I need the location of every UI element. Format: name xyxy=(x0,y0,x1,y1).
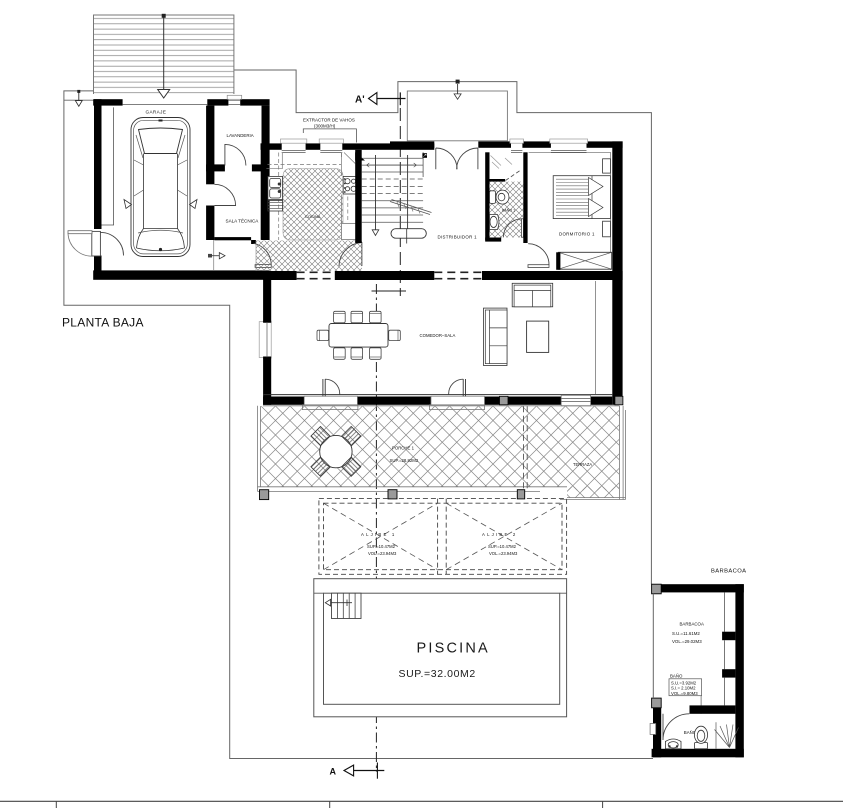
svg-text:DISTRIBUIDOR 1: DISTRIBUIDOR 1 xyxy=(438,234,478,239)
svg-text:BARBACOA: BARBACOA xyxy=(680,622,704,627)
svg-text:A: A xyxy=(330,767,337,777)
svg-text:SUP.=10.47M2: SUP.=10.47M2 xyxy=(367,544,396,549)
svg-text:PLANTA BAJA: PLANTA BAJA xyxy=(62,316,144,330)
svg-text:SUP.=10.47M2: SUP.=10.47M2 xyxy=(488,544,517,549)
svg-text:SUP.=32.00M2: SUP.=32.00M2 xyxy=(399,668,476,680)
svg-text:PISCINA: PISCINA xyxy=(417,641,490,657)
svg-text:GARAJE: GARAJE xyxy=(146,110,167,115)
svg-text:EXTRACTOR DE VAHOS: EXTRACTOR DE VAHOS xyxy=(303,118,355,123)
svg-text:COMEDOR–SALA: COMEDOR–SALA xyxy=(420,333,456,338)
svg-text:VOL.=23.94M3: VOL.=23.94M3 xyxy=(368,551,397,556)
svg-text:SALA TÉCNICA: SALA TÉCNICA xyxy=(226,218,260,224)
svg-text:PORCHE 1: PORCHE 1 xyxy=(392,446,415,451)
svg-text:S.U.=3.92M2: S.U.=3.92M2 xyxy=(671,680,697,685)
svg-text:ALJIBE 1: ALJIBE 1 xyxy=(361,532,397,537)
svg-text:S.I.= 2.10M2: S.I.= 2.10M2 xyxy=(671,686,696,691)
svg-text:VOL.=29.02M3: VOL.=29.02M3 xyxy=(672,639,702,644)
svg-text:DORMITORIO 1: DORMITORIO 1 xyxy=(559,232,595,237)
svg-text:BAÑO: BAÑO xyxy=(670,673,683,678)
svg-text:S.U.=11.61M2: S.U.=11.61M2 xyxy=(672,631,700,636)
svg-text:SUP.=28.82M2: SUP.=28.82M2 xyxy=(390,458,419,463)
svg-text:ALJIBE 2: ALJIBE 2 xyxy=(482,532,518,537)
svg-text:A': A' xyxy=(355,95,365,106)
svg-text:BARBACOA: BARBACOA xyxy=(711,569,746,575)
svg-text:LAVANDERIA: LAVANDERIA xyxy=(227,133,254,138)
svg-text:VOL.=9.80M3: VOL.=9.80M3 xyxy=(671,691,698,696)
svg-text:(300M3/H): (300M3/H) xyxy=(314,124,336,129)
svg-text:COCINA: COCINA xyxy=(305,214,321,219)
svg-text:VOL.=23.94M3: VOL.=23.94M3 xyxy=(489,551,518,556)
svg-text:TERRAZA: TERRAZA xyxy=(573,462,592,467)
svg-text:BAÑO 1: BAÑO 1 xyxy=(502,208,515,213)
